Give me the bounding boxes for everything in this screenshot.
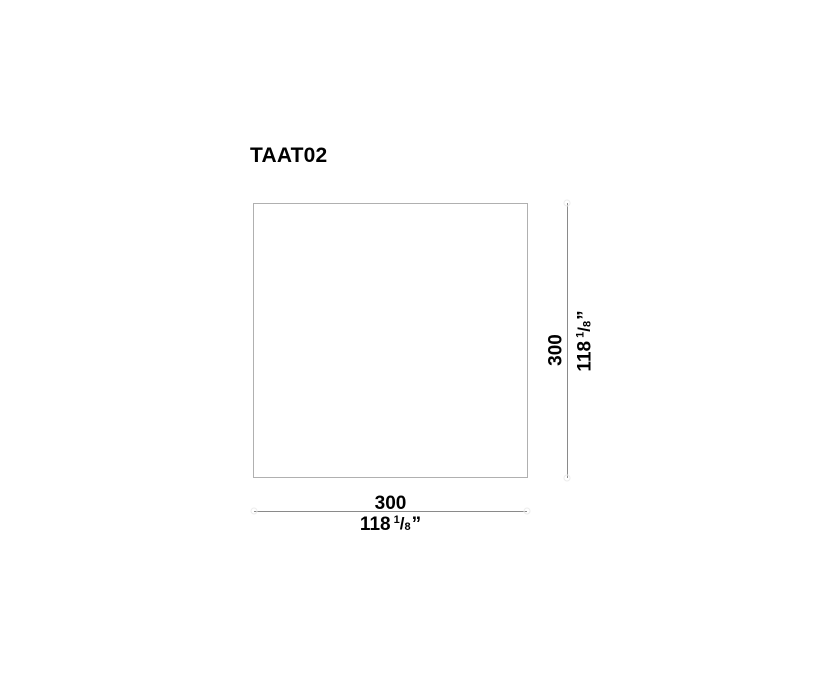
fraction-slash: / xyxy=(575,327,594,332)
height-dimension-line xyxy=(567,203,568,478)
dimension-end-marker xyxy=(564,200,571,207)
height-imperial-whole: 118 xyxy=(575,341,596,372)
height-imperial-fraction: 1/8 xyxy=(575,321,596,338)
height-imperial-label: 1181/8” xyxy=(576,310,595,371)
square-outline xyxy=(253,203,528,478)
dimension-end-marker xyxy=(564,475,571,482)
inch-mark: ” xyxy=(412,514,422,535)
product-code-title: TAAT02 xyxy=(250,145,327,166)
width-imperial-label: 1181/8” xyxy=(254,515,527,534)
inch-mark: ” xyxy=(575,310,596,320)
width-imperial-whole: 118 xyxy=(360,514,391,535)
height-metric-label: 300 xyxy=(547,334,566,366)
fraction-denominator: 8 xyxy=(582,321,594,327)
fraction-denominator: 8 xyxy=(404,521,410,533)
width-metric-label: 300 xyxy=(254,494,527,513)
fraction-numerator: 1 xyxy=(575,332,587,338)
width-imperial-fraction: 1/8 xyxy=(394,514,411,535)
